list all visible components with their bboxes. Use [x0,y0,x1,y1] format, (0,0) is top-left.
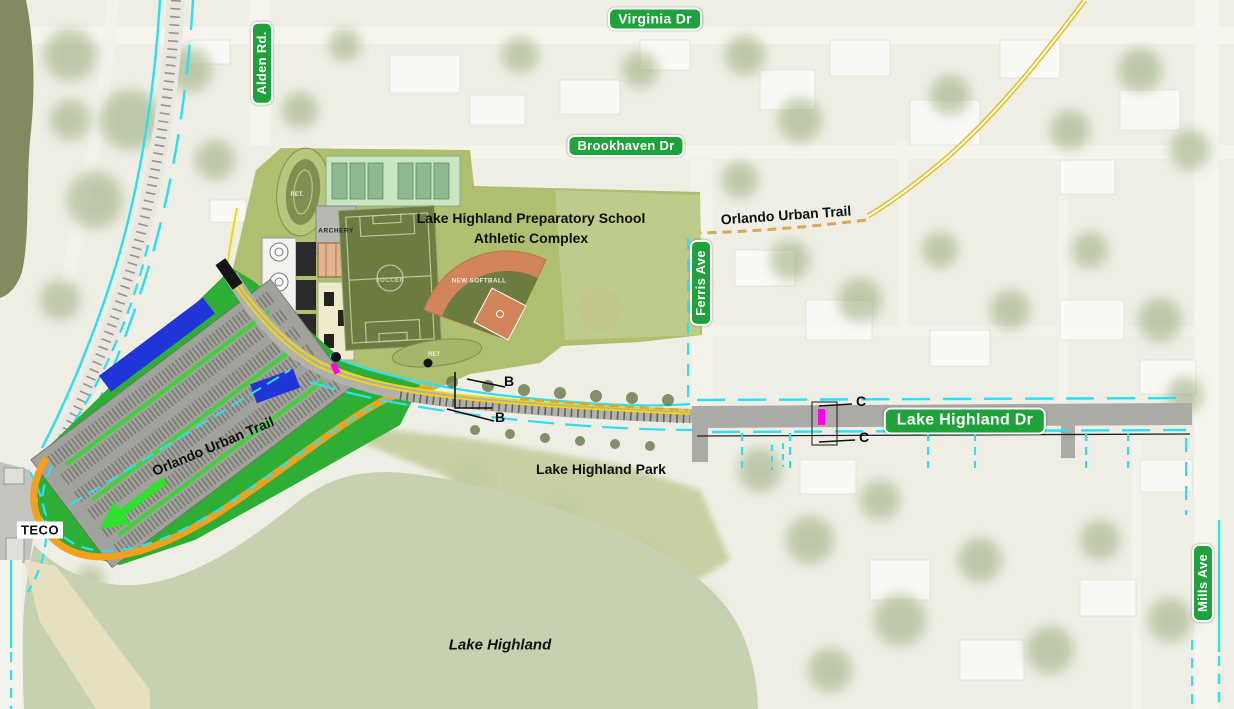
tennis-courts [326,156,460,206]
label-teco: TECO [17,522,63,539]
sign-ferris-ave: Ferris Ave [690,240,712,326]
complex-title: Lake Highland Preparatory School Athleti… [417,208,646,248]
sign-brookhaven-dr: Brookhaven Dr [567,135,684,157]
complex-title-line2: Athletic Complex [417,228,646,248]
map-drawing [0,0,1234,709]
complex-title-line1: Lake Highland Preparatory School [417,208,646,228]
site-plan-map: Virginia Dr Alden Rd. Brookhaven Dr Ferr… [0,0,1234,709]
label-new-softball: NEW SOFTBALL [452,278,507,285]
sign-mills-ave: Mills Ave [1192,544,1214,622]
label-lake-highland-park: Lake Highland Park [536,461,666,477]
label-archery: ARCHERY [318,228,353,235]
label-soccer: SOCCER [376,278,405,284]
sign-lake-highland-dr: Lake Highland Dr [884,408,1046,435]
lake-topleft [0,0,33,298]
magenta-marker [818,409,825,425]
label-ret-pond: RET [428,352,440,358]
section-marker-c2: C [859,429,869,445]
label-ret-track: RET. [290,192,303,198]
section-marker-b2: B [495,409,505,425]
sign-alden-rd: Alden Rd. [251,21,273,104]
sign-virginia-dr: Virginia Dr [608,8,702,31]
section-marker-b1: B [504,373,514,389]
label-lake-highland: Lake Highland [449,637,552,654]
section-marker-c1: C [856,393,866,409]
